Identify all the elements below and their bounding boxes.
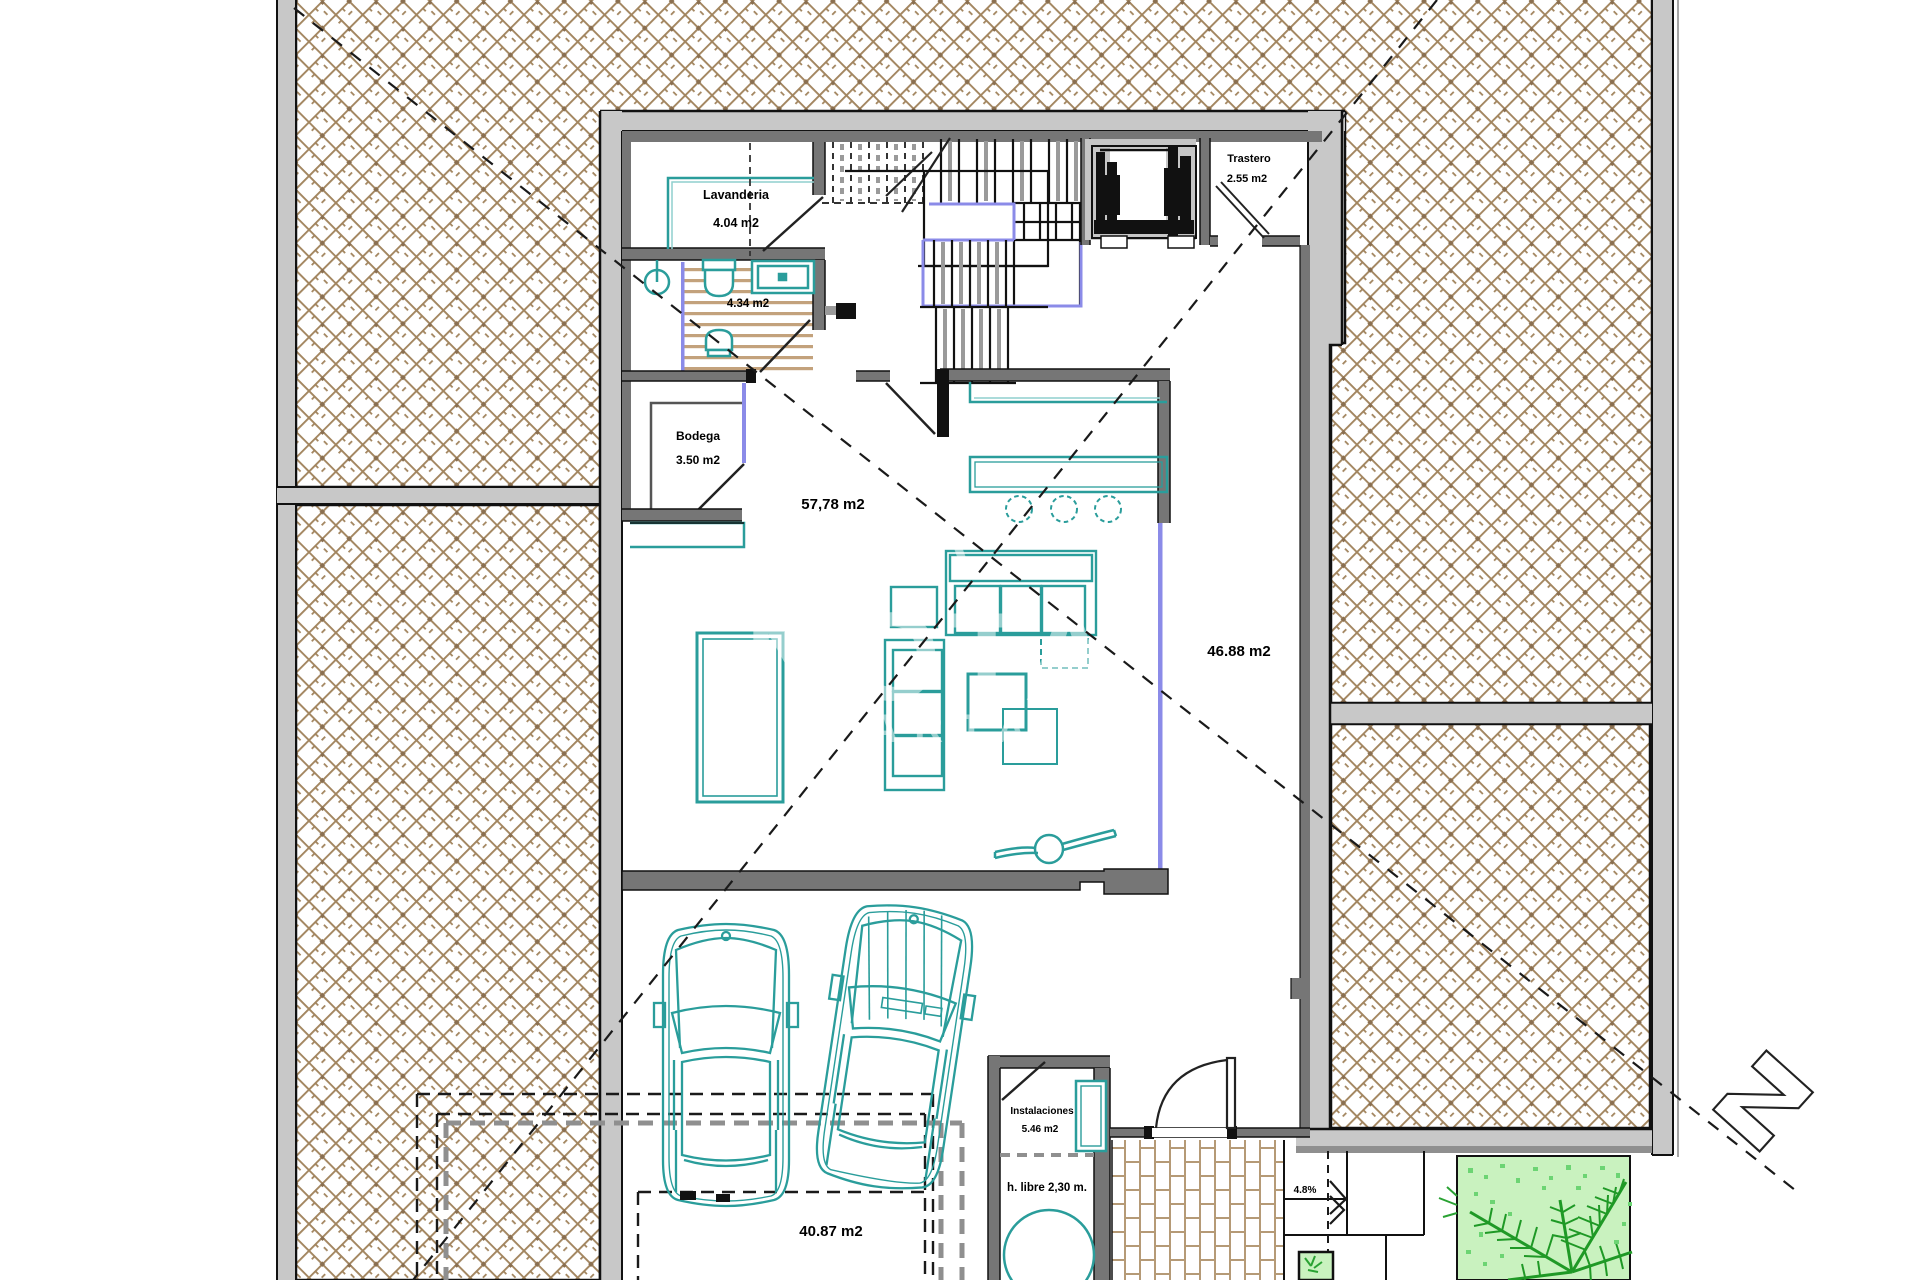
svg-text:MARTA: MARTA xyxy=(820,707,1041,751)
svg-text:40.87 m2: 40.87 m2 xyxy=(799,1223,862,1240)
svg-text:4.34 m2: 4.34 m2 xyxy=(727,298,769,310)
svg-text:3.50 m2: 3.50 m2 xyxy=(676,453,720,467)
svg-text:46.88 m2: 46.88 m2 xyxy=(1207,643,1270,660)
svg-text:Trastero: Trastero xyxy=(1227,153,1271,165)
svg-text:RIA: RIA xyxy=(845,506,978,573)
svg-text:5.46 m2: 5.46 m2 xyxy=(1022,1124,1059,1135)
svg-text:Bodega: Bodega xyxy=(676,429,720,443)
svg-text:4.8%: 4.8% xyxy=(1294,1185,1317,1196)
svg-text:2.55 m2: 2.55 m2 xyxy=(1227,173,1267,185)
svg-text:Instalaciones: Instalaciones xyxy=(1010,1106,1074,1117)
svg-text:Lavanderia: Lavanderia xyxy=(703,188,770,202)
svg-text:h. libre 2,30 m.: h. libre 2,30 m. xyxy=(1007,1182,1087,1194)
svg-text:4.04 m2: 4.04 m2 xyxy=(713,216,759,230)
